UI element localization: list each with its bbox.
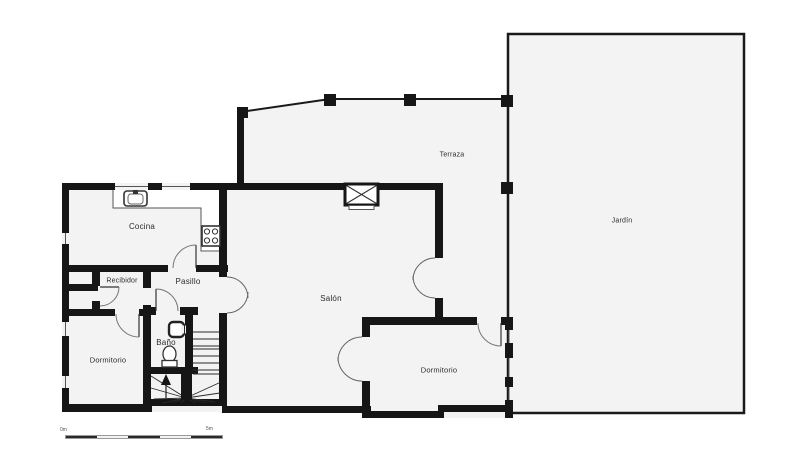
scale-segment	[128, 436, 159, 438]
room-label-dormitorio-izq: Dormitorio	[90, 356, 127, 364]
terraza-side-floor	[443, 186, 509, 322]
floor-plan-page: Cocina Recibidor Pasillo Baño Dormitorio…	[0, 0, 800, 450]
scale-end-label: 5m	[206, 427, 213, 432]
room-label-terraza: Terraza	[440, 152, 465, 159]
room-label-recibidor: Recibidor	[106, 278, 137, 285]
pillar-icon	[501, 182, 513, 194]
pillar-icon	[404, 94, 416, 106]
room-label-salon: Salón	[320, 295, 341, 303]
scale-segment	[66, 436, 97, 438]
room-label-bano: Baño	[156, 339, 175, 347]
sink-icon	[124, 190, 147, 206]
pillar-icon	[324, 94, 336, 106]
room-label-cocina: Cocina	[129, 223, 155, 231]
floor-plan-drawing	[0, 0, 800, 450]
fireplace-icon	[345, 184, 378, 210]
washbasin-icon	[169, 322, 186, 337]
pillar-icon	[501, 95, 513, 107]
room-label-jardin: Jardín	[612, 218, 633, 225]
scale-start-label: 0m	[60, 428, 67, 433]
stove-icon	[202, 226, 220, 246]
scale-segment	[97, 436, 128, 438]
scale-segment	[160, 436, 191, 438]
terraza-floor	[241, 98, 511, 188]
toilet-icon	[162, 346, 177, 367]
scale-bar	[65, 435, 223, 439]
room-label-pasillo: Pasillo	[176, 278, 201, 286]
scale-segment	[191, 436, 222, 438]
room-label-dormitorio-der: Dormitorio	[421, 366, 458, 374]
